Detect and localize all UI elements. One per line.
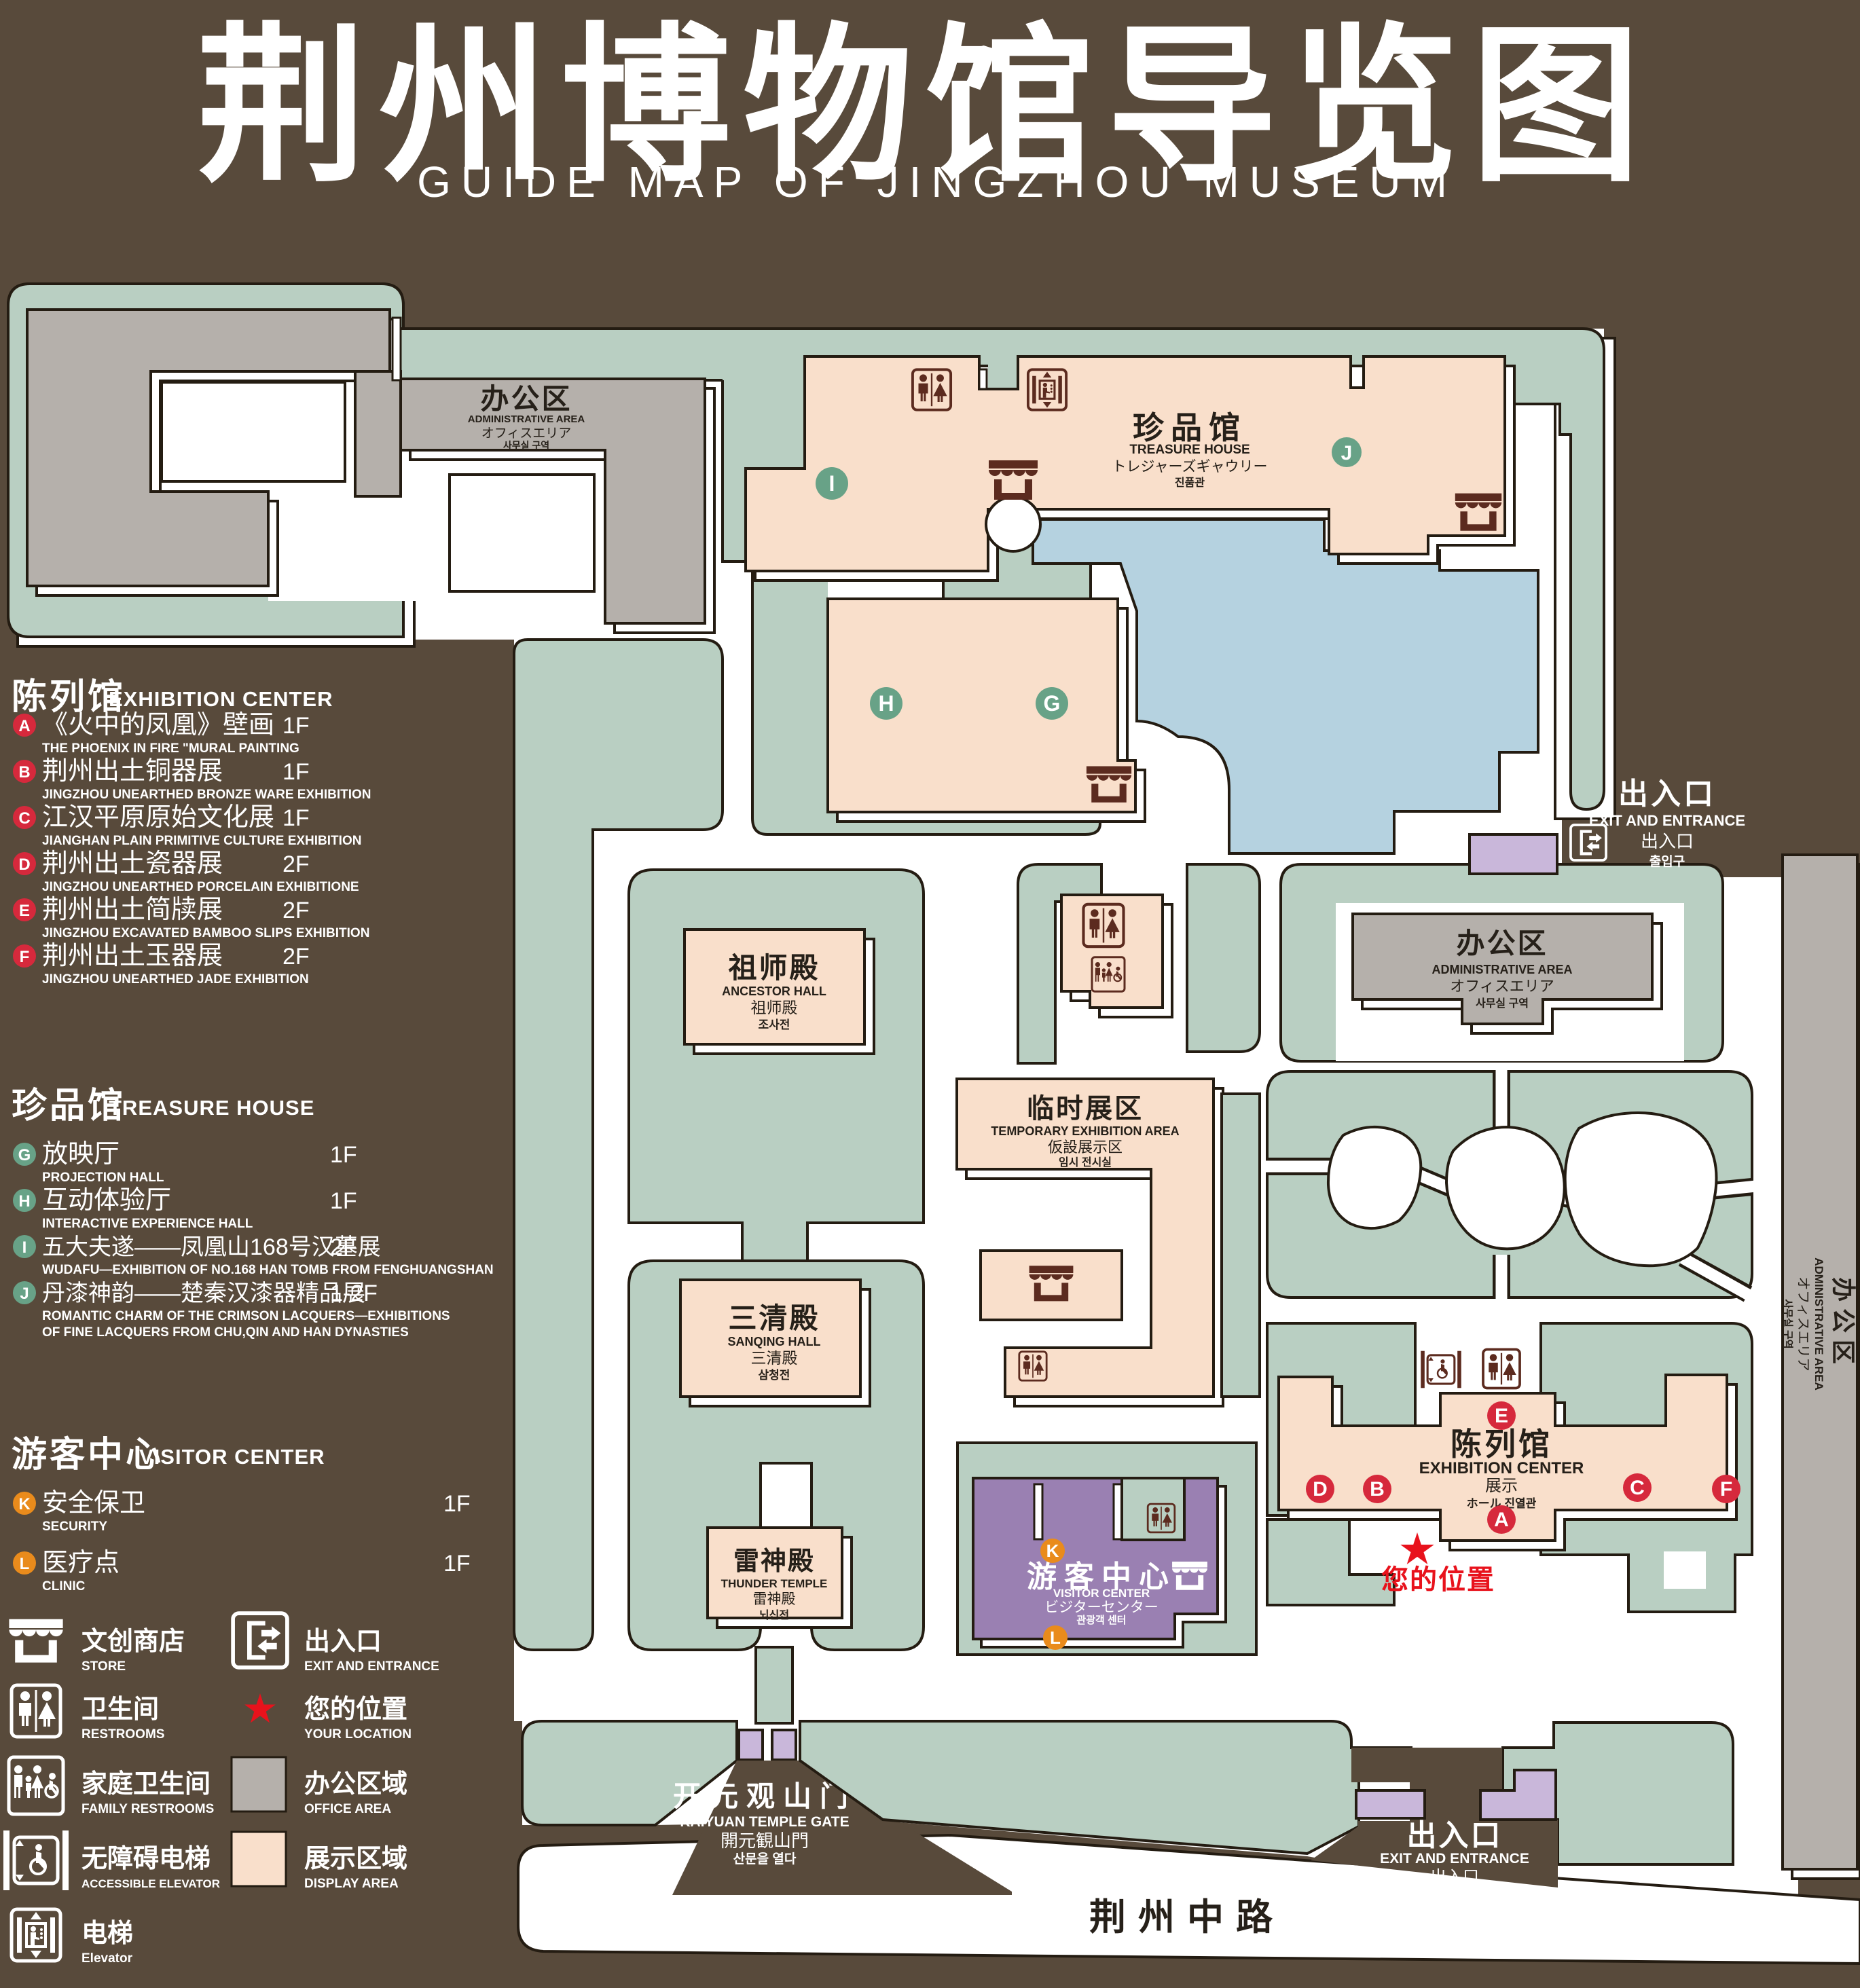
svg-text:DISPLAY AREA: DISPLAY AREA — [304, 1877, 399, 1891]
svg-text:WUDAFU—EXHIBITION OF NO.168 HA: WUDAFU—EXHIBITION OF NO.168 HAN TOMB FRO… — [42, 1263, 494, 1277]
svg-text:出入口: 出入口 — [1430, 1868, 1479, 1886]
svg-text:I: I — [829, 471, 835, 496]
svg-text:E: E — [19, 902, 30, 920]
svg-text:1F: 1F — [282, 713, 310, 739]
svg-text:조사전: 조사전 — [759, 1018, 790, 1031]
svg-text:C: C — [1630, 1477, 1645, 1499]
svg-text:E: E — [1495, 1405, 1508, 1427]
svg-text:办公区域: 办公区域 — [304, 1770, 407, 1799]
svg-text:G: G — [1044, 691, 1061, 716]
svg-text:1F: 1F — [443, 1551, 471, 1577]
svg-text:사무실 구역: 사무실 구역 — [1782, 1299, 1793, 1348]
svg-text:F: F — [1720, 1478, 1732, 1501]
svg-text:1F: 1F — [282, 805, 310, 831]
svg-text:雷神殿: 雷神殿 — [733, 1547, 815, 1576]
svg-text:2F: 2F — [282, 851, 310, 877]
svg-text:J: J — [1341, 442, 1353, 464]
svg-text:丹漆神韵——楚秦汉漆器精品展: 丹漆神韵——楚秦汉漆器精品展 — [42, 1281, 365, 1306]
svg-text:出入口: 出入口 — [1407, 1819, 1503, 1852]
svg-text:VISITOR CENTER: VISITOR CENTER — [1053, 1587, 1150, 1600]
svg-text:出入口: 出入口 — [304, 1627, 382, 1656]
svg-text:뇌신전: 뇌신전 — [759, 1609, 789, 1621]
svg-text:SECURITY: SECURITY — [42, 1520, 107, 1534]
svg-text:진품관: 진품관 — [1175, 477, 1205, 489]
svg-text:ADMINISTRATIVE AREA: ADMINISTRATIVE AREA — [468, 413, 585, 425]
svg-text:L: L — [20, 1555, 30, 1573]
svg-text:雷神殿: 雷神殿 — [753, 1591, 796, 1607]
svg-text:1F: 1F — [282, 759, 310, 785]
svg-text:TEMPORARY EXHIBITION AREA: TEMPORARY EXHIBITION AREA — [991, 1124, 1179, 1138]
svg-text:祖师殿: 祖师殿 — [728, 952, 820, 984]
svg-text:KAIYUAN TEMPLE GATE: KAIYUAN TEMPLE GATE — [680, 1814, 849, 1830]
svg-text:A: A — [18, 717, 30, 735]
svg-text:オフィスエリア: オフィスエリア — [1795, 1276, 1810, 1372]
svg-text:ANCESTOR HALL: ANCESTOR HALL — [722, 984, 826, 998]
svg-text:THUNDER TEMPLE: THUNDER TEMPLE — [721, 1577, 828, 1590]
svg-text:관광객 센터: 관광객 센터 — [1076, 1614, 1126, 1626]
svg-text:卫生间: 卫生间 — [81, 1695, 159, 1724]
svg-text:三清殿: 三清殿 — [728, 1302, 820, 1334]
svg-text:电梯: 电梯 — [81, 1919, 133, 1948]
svg-text:FAMILY RESTROOMS: FAMILY RESTROOMS — [81, 1802, 214, 1816]
svg-text:TREASURE HOUSE: TREASURE HOUSE — [109, 1096, 314, 1120]
svg-text:医疗点: 医疗点 — [42, 1549, 120, 1577]
svg-text:荆州出土简牍展: 荆州出土简牍展 — [42, 896, 223, 924]
svg-text:THE PHOENIX IN FIRE "MURAL PAI: THE PHOENIX IN FIRE "MURAL PAINTING — [42, 741, 299, 756]
svg-text:祖师殿: 祖师殿 — [751, 999, 798, 1016]
svg-text:PROJECTION HALL: PROJECTION HALL — [42, 1171, 164, 1185]
svg-text:三清殿: 三清殿 — [751, 1349, 798, 1367]
svg-text:展示区域: 展示区域 — [304, 1845, 407, 1873]
svg-text:JINGZHOU UNEARTHED PORCELAIN E: JINGZHOU UNEARTHED PORCELAIN EXHIBITIONE — [42, 880, 359, 894]
svg-text:办公区: 办公区 — [1456, 927, 1548, 959]
svg-text:D: D — [1313, 1478, 1328, 1501]
svg-text:家庭卫生间: 家庭卫生间 — [81, 1769, 211, 1799]
svg-text:STORE: STORE — [81, 1659, 126, 1674]
svg-text:RESTROOMS: RESTROOMS — [81, 1727, 164, 1742]
svg-text:临时展区: 临时展区 — [1027, 1094, 1144, 1124]
svg-text:JINGZHOU EXCAVATED BAMBOO SLIP: JINGZHOU EXCAVATED BAMBOO SLIPS EXHIBITI… — [42, 926, 369, 940]
svg-text:オフィスエリア: オフィスエリア — [1450, 978, 1554, 995]
svg-text:C: C — [18, 809, 30, 828]
svg-text:임시 전시실: 임시 전시실 — [1059, 1156, 1112, 1168]
svg-text:荆州出土瓷器展: 荆州出土瓷器展 — [42, 849, 223, 878]
svg-text:TREASURE HOUSE: TREASURE HOUSE — [1129, 443, 1250, 457]
svg-text:B: B — [1370, 1478, 1385, 1501]
svg-text:GUIDE MAP OF JINGZHOU MUSEUM: GUIDE MAP OF JINGZHOU MUSEUM — [417, 158, 1457, 206]
svg-text:A: A — [1494, 1509, 1509, 1531]
svg-text:OFFICE AREA: OFFICE AREA — [304, 1802, 391, 1816]
svg-text:江汉平原原始文化展: 江汉平原原始文化展 — [42, 803, 274, 832]
svg-text:オフィスエリア: オフィスエリア — [481, 426, 572, 441]
svg-text:YOUR LOCATION: YOUR LOCATION — [304, 1727, 412, 1742]
svg-text:INTERACTIVE EXPERIENCE HALL: INTERACTIVE EXPERIENCE HALL — [42, 1217, 253, 1231]
svg-text:산문을 열다: 산문을 열다 — [733, 1852, 797, 1866]
svg-text:K: K — [1046, 1541, 1059, 1561]
svg-text:无障碍电梯: 无障碍电梯 — [81, 1845, 211, 1873]
svg-text:珍品馆: 珍品馆 — [1133, 410, 1247, 445]
svg-text:H: H — [18, 1192, 30, 1211]
svg-text:L: L — [1050, 1627, 1061, 1648]
svg-text:您的位置: 您的位置 — [304, 1695, 407, 1724]
svg-text:SANQING HALL: SANQING HALL — [728, 1335, 821, 1348]
svg-text:ビジターセンター: ビジターセンター — [1044, 1600, 1159, 1615]
svg-text:JINGZHOU UNEARTHED JADE EXHIBI: JINGZHOU UNEARTHED JADE EXHIBITION — [42, 972, 309, 987]
svg-text:2F: 2F — [330, 1234, 357, 1260]
svg-text:K: K — [18, 1495, 31, 1513]
svg-text:F: F — [20, 948, 30, 966]
svg-text:荆州中路: 荆州中路 — [1089, 1897, 1285, 1938]
svg-text:2F: 2F — [282, 944, 310, 970]
svg-text:OF FINE LACQUERS FROM CHU,QIN: OF FINE LACQUERS FROM CHU,QIN AND HAN DY… — [42, 1325, 409, 1340]
svg-text:출입구: 출입구 — [1649, 854, 1685, 869]
svg-text:开元观山门: 开元观山门 — [673, 1780, 856, 1812]
svg-text:荆州出土玉器展: 荆州出土玉器展 — [42, 942, 223, 970]
svg-text:陈列馆: 陈列馆 — [1451, 1426, 1552, 1462]
svg-text:1-2F: 1-2F — [330, 1281, 378, 1306]
svg-text:G: G — [18, 1146, 31, 1164]
svg-text:Elevator: Elevator — [81, 1951, 133, 1966]
svg-text:办公区: 办公区 — [480, 383, 572, 415]
svg-text:EXIT AND ENTRANCE: EXIT AND ENTRANCE — [304, 1659, 439, 1674]
svg-text:出入口: 出入口 — [1641, 831, 1694, 851]
svg-text:EXIT AND ENTRANCE: EXIT AND ENTRANCE — [1589, 812, 1745, 829]
svg-text:仮設展示区: 仮設展示区 — [1048, 1139, 1123, 1156]
svg-text:EXHIBITION CENTER: EXHIBITION CENTER — [109, 687, 333, 711]
svg-text:JINGZHOU UNEARTHED BRONZE WARE: JINGZHOU UNEARTHED BRONZE WARE EXHIBITIO… — [42, 788, 371, 802]
svg-text:삼청전: 삼청전 — [759, 1368, 790, 1382]
svg-text:办公区: 办公区 — [1829, 1277, 1857, 1371]
svg-text:H: H — [878, 691, 894, 716]
svg-text:安全保卫: 安全保卫 — [42, 1489, 145, 1517]
svg-text:ADMINISTRATIVE AREA: ADMINISTRATIVE AREA — [1432, 963, 1573, 976]
svg-text:文创商店: 文创商店 — [81, 1627, 185, 1656]
svg-text:《火中的凤凰》壁画: 《火中的凤凰》壁画 — [42, 711, 274, 739]
svg-text:EXHIBITION CENTER: EXHIBITION CENTER — [1419, 1459, 1584, 1477]
svg-text:사무실 구역: 사무실 구역 — [503, 440, 549, 451]
svg-text:D: D — [18, 855, 30, 874]
svg-text:您的位置: 您的位置 — [1381, 1565, 1495, 1595]
svg-text:J: J — [20, 1285, 29, 1303]
svg-text:사무실 구역: 사무실 구역 — [1476, 997, 1529, 1010]
svg-text:ADMINISTRATIVE AREA: ADMINISTRATIVE AREA — [1812, 1257, 1825, 1391]
svg-text:1F: 1F — [443, 1491, 471, 1517]
svg-text:ROMANTIC CHARM OF THE CRIMSON: ROMANTIC CHARM OF THE CRIMSON LACQUERS—E… — [42, 1309, 450, 1323]
svg-text:I: I — [22, 1238, 27, 1257]
svg-text:B: B — [18, 763, 30, 781]
svg-text:출입구: 출입구 — [1438, 1887, 1472, 1901]
svg-text:EXIT AND ENTRANCE: EXIT AND ENTRANCE — [1380, 1851, 1529, 1866]
svg-text:出入口: 出入口 — [1618, 777, 1716, 811]
svg-text:2F: 2F — [282, 898, 310, 923]
svg-text:放映厅: 放映厅 — [42, 1140, 120, 1168]
svg-text:荆州出土铜器展: 荆州出土铜器展 — [42, 757, 223, 786]
svg-text:展示: 展示 — [1485, 1477, 1518, 1495]
svg-text:1F: 1F — [330, 1188, 357, 1214]
svg-text:開元観山門: 開元観山門 — [721, 1830, 809, 1851]
svg-text:VISITOR CENTER: VISITOR CENTER — [139, 1445, 325, 1469]
svg-text:JIANGHAN PLAIN PRIMITIVE CULTU: JIANGHAN PLAIN PRIMITIVE CULTURE EXHIBIT… — [42, 834, 361, 848]
svg-text:1F: 1F — [330, 1142, 357, 1168]
svg-text:トレジャーズギャウリー: トレジャーズギャウリー — [1112, 459, 1268, 475]
svg-text:互动体验厅: 互动体验厅 — [42, 1186, 171, 1215]
svg-text:ACCESSIBLE ELEVATOR: ACCESSIBLE ELEVATOR — [81, 1877, 220, 1890]
svg-text:CLINIC: CLINIC — [42, 1579, 86, 1594]
